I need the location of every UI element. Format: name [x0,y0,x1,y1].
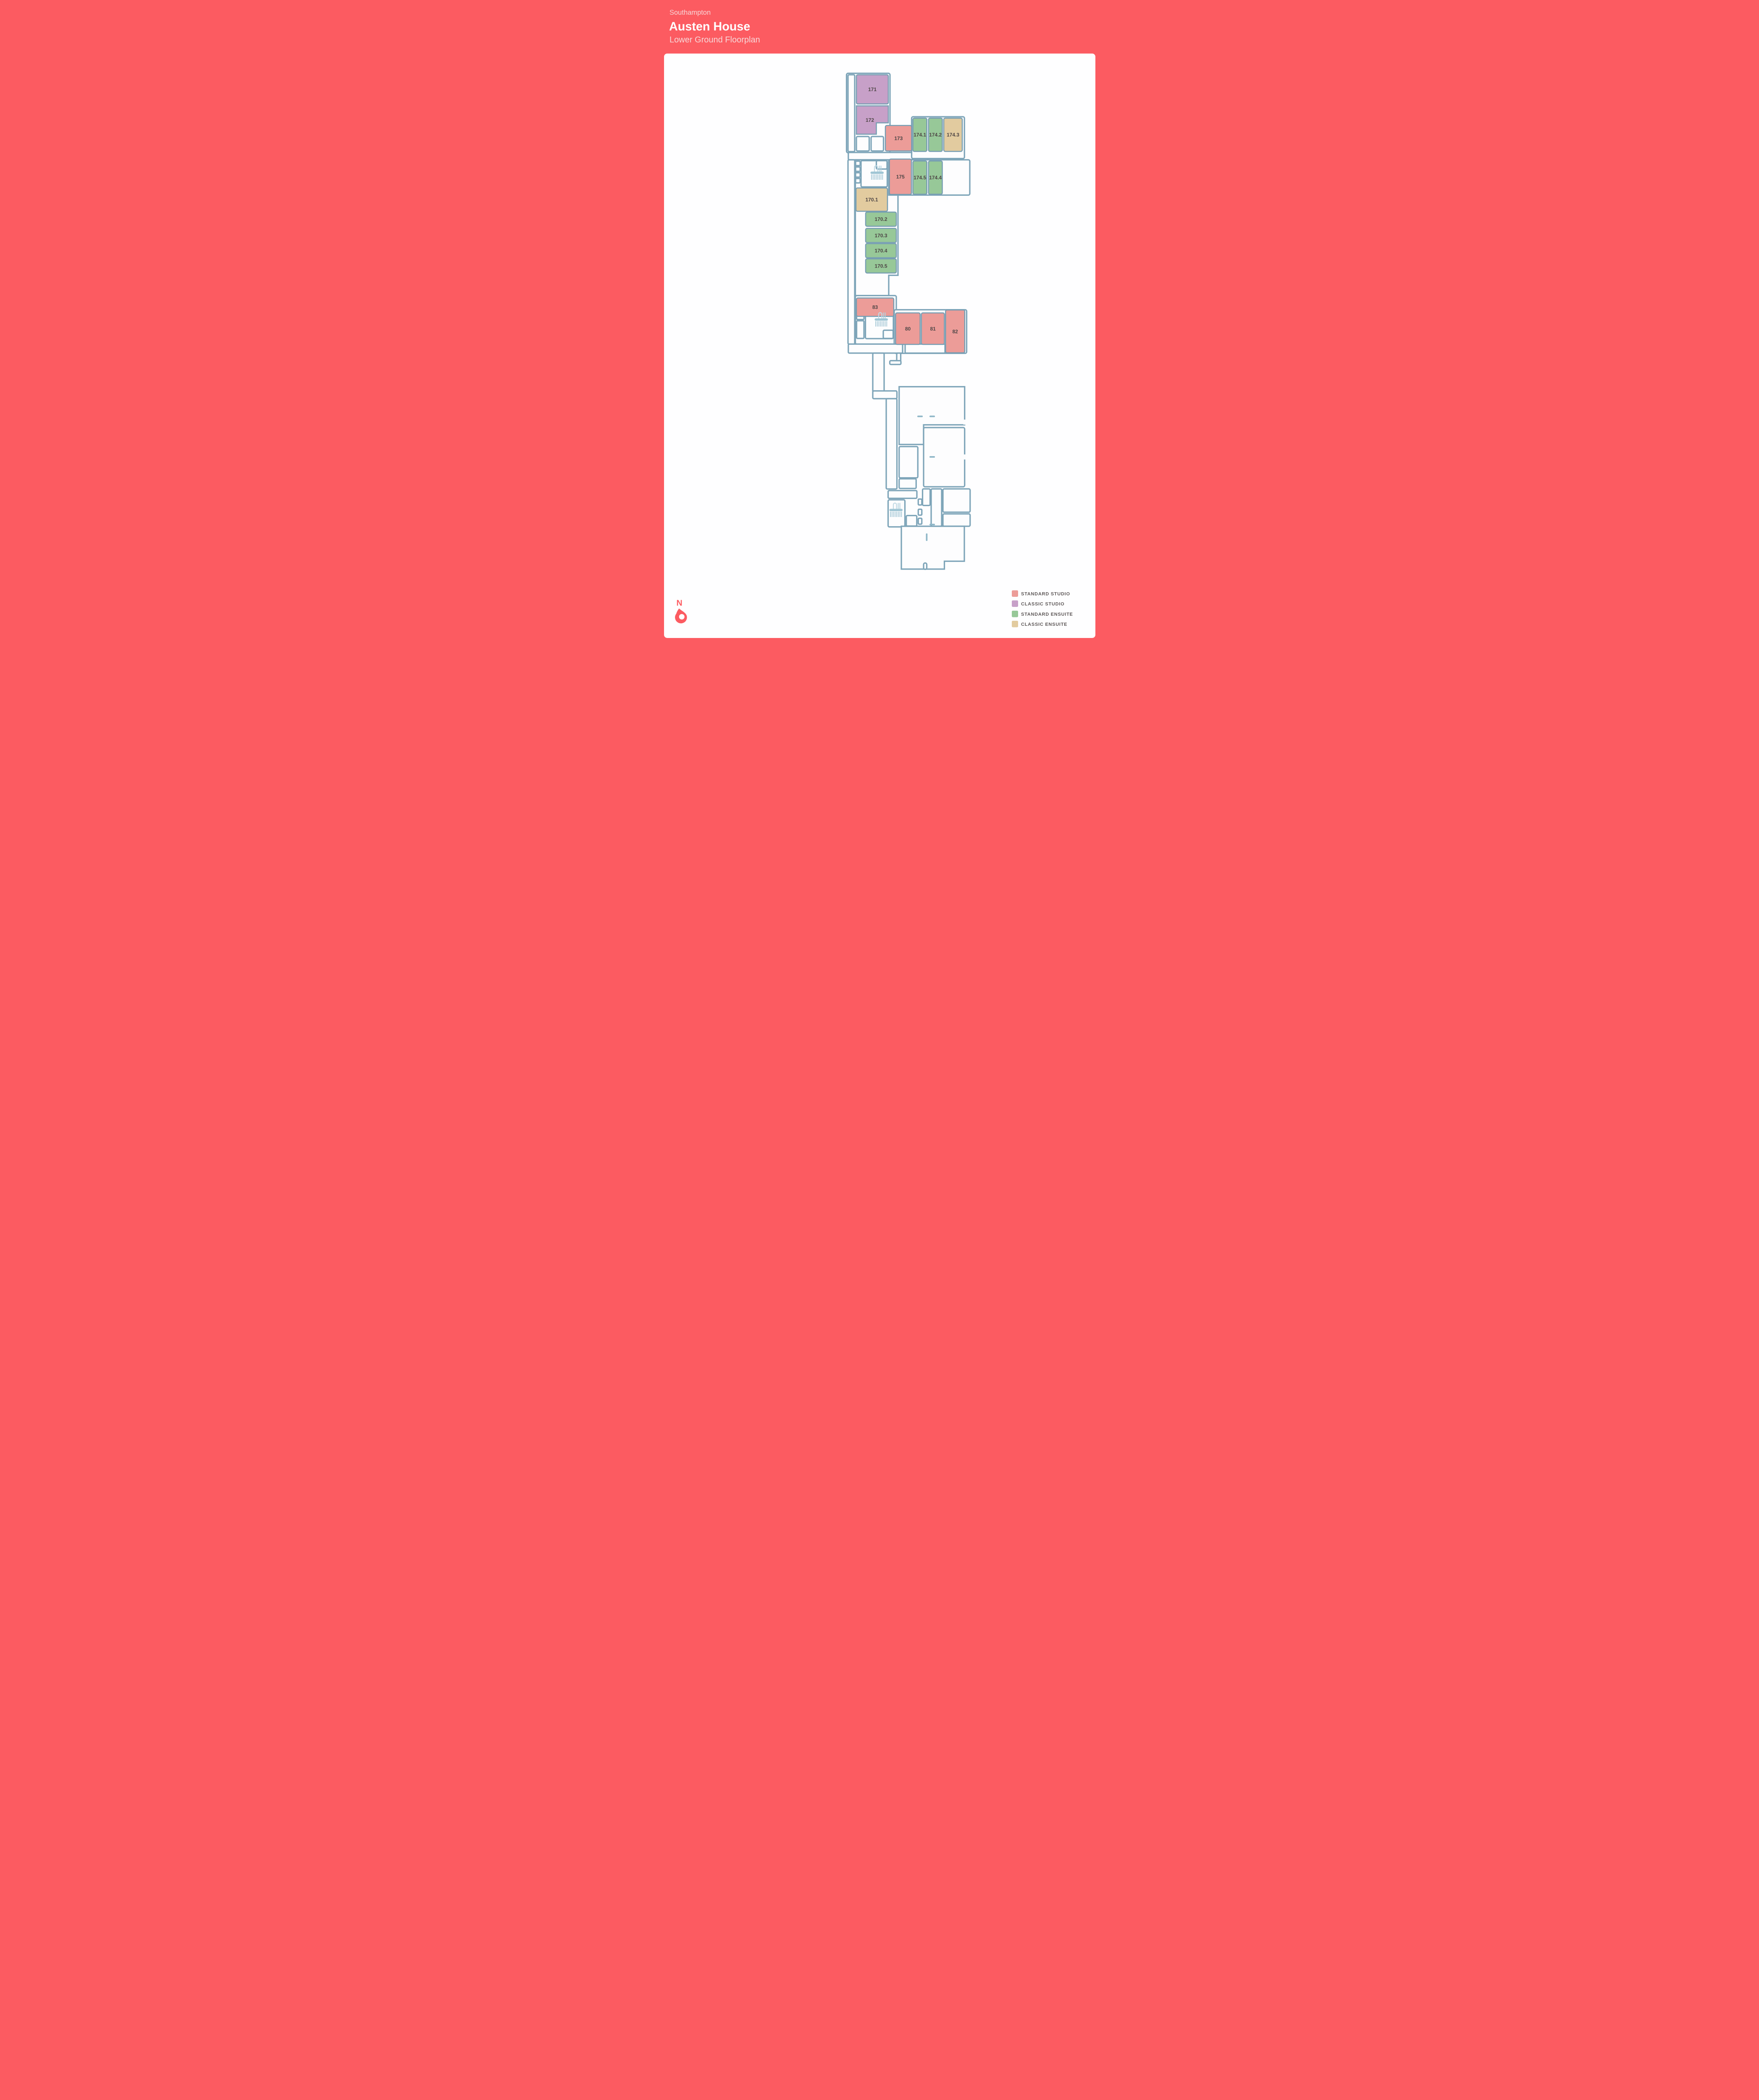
door-opening [963,454,966,459]
room-unlabeled [906,516,916,526]
lift-shaft [918,518,922,524]
room-unlabeled [856,321,864,339]
header-building: Austen House [669,20,750,34]
room-unlabeled [922,489,930,506]
legend-swatch-classic-ensuite [1012,621,1018,627]
utility-cupboard [856,167,860,172]
legend-label-standard-ensuite: STANDARD ENSUITE [1021,612,1073,617]
utility-cupboard [856,161,860,166]
corridor [848,75,855,152]
room-unlabeled [943,514,970,527]
door-marker [929,524,935,525]
legend-label-standard-studio: STANDARD STUDIO [1021,592,1070,597]
room-label-173: 173 [894,135,903,141]
room-label-174.1: 174.1 [914,132,926,138]
header-city: Southampton [669,9,711,16]
room-label-172: 172 [865,117,874,123]
room-label-80: 80 [905,326,911,332]
legend-label-classic-ensuite: CLASSIC ENSUITE [1021,622,1067,627]
compass-north-label: N [676,598,682,608]
room-label-174.2: 174.2 [929,132,942,138]
corridor [888,491,917,499]
floorplan-page: Southampton Austen House Lower Ground Fl… [660,0,1100,642]
door-opening [924,563,927,570]
room-label-174.4: 174.4 [929,175,942,181]
room-unlabeled [871,136,884,151]
room-unlabeled [883,330,893,339]
room-label-170.3: 170.3 [874,233,887,239]
corridor [905,344,945,353]
lift-shaft [918,499,922,505]
floorplan-canvas: Southampton Austen House Lower Ground Fl… [660,0,1100,642]
legend-swatch-standard-studio [1012,591,1018,597]
door-opening [963,420,966,425]
corridor [873,353,884,392]
room-label-171: 171 [868,87,876,92]
legend-swatch-standard-ensuite [1012,611,1018,617]
legend-label-classic-studio: CLASSIC STUDIO [1021,602,1064,607]
door-marker [929,456,935,458]
corridor [873,391,897,399]
room-label-81: 81 [930,326,936,332]
utility-cupboard [856,178,860,183]
room-label-82: 82 [952,328,958,334]
compass-droplet-hole [679,614,684,619]
door-marker [926,533,927,541]
legend-swatch-classic-studio [1012,601,1018,607]
room-label-170.4: 170.4 [874,248,887,254]
header-subtitle: Lower Ground Floorplan [669,35,760,45]
room-label-83: 83 [872,304,878,310]
corridor [848,344,902,353]
corridor [848,160,855,344]
room-label-170.2: 170.2 [874,216,887,222]
utility-cupboard [856,173,860,177]
corridor [890,361,901,365]
room-unlabeled [899,479,916,488]
room-label-175: 175 [896,174,904,180]
room-unlabeled [931,489,942,526]
room-unlabeled [943,489,970,512]
corridor [886,399,897,489]
room-label-170.1: 170.1 [865,197,878,203]
room-label-174.5: 174.5 [914,175,926,181]
room-label-170.5: 170.5 [874,263,887,269]
room-label-174.3: 174.3 [946,132,959,138]
room-unlabeled [899,446,918,478]
room-unlabeled [856,136,869,151]
lift-shaft [918,509,922,515]
door-marker [929,416,935,417]
door-marker [917,416,923,417]
